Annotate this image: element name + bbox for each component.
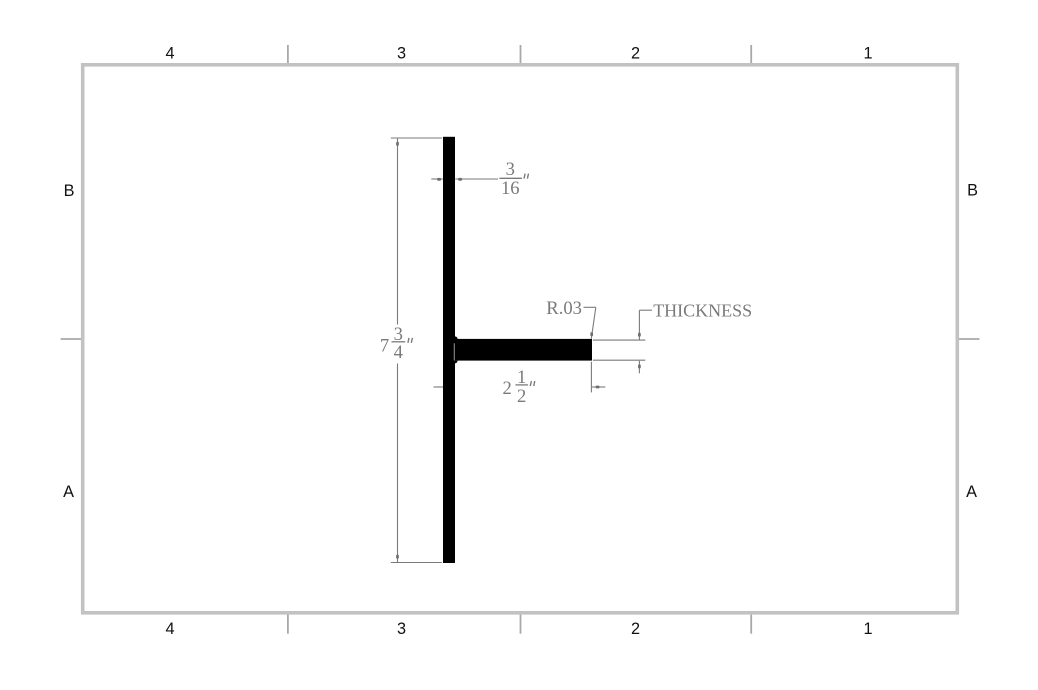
svg-text:1: 1 (863, 620, 872, 638)
svg-text:2: 2 (503, 378, 512, 399)
svg-text:1: 1 (863, 45, 872, 63)
svg-text:7: 7 (380, 336, 389, 357)
svg-text:4: 4 (165, 45, 174, 63)
svg-text:THICKNESS: THICKNESS (653, 300, 752, 320)
svg-text:3: 3 (506, 159, 515, 180)
svg-text:2: 2 (631, 620, 640, 638)
svg-text:B: B (64, 182, 75, 200)
svg-text:2: 2 (631, 45, 640, 63)
svg-text:4: 4 (394, 342, 403, 363)
svg-text:A: A (966, 483, 977, 501)
svg-text:2: 2 (517, 386, 526, 407)
svg-text:B: B (967, 182, 978, 200)
svg-text:3: 3 (397, 45, 406, 63)
svg-text:R.03: R.03 (546, 298, 582, 319)
svg-text:16: 16 (501, 178, 520, 199)
svg-text:A: A (63, 483, 74, 501)
svg-text:4: 4 (165, 620, 174, 638)
svg-text:3: 3 (397, 620, 406, 638)
